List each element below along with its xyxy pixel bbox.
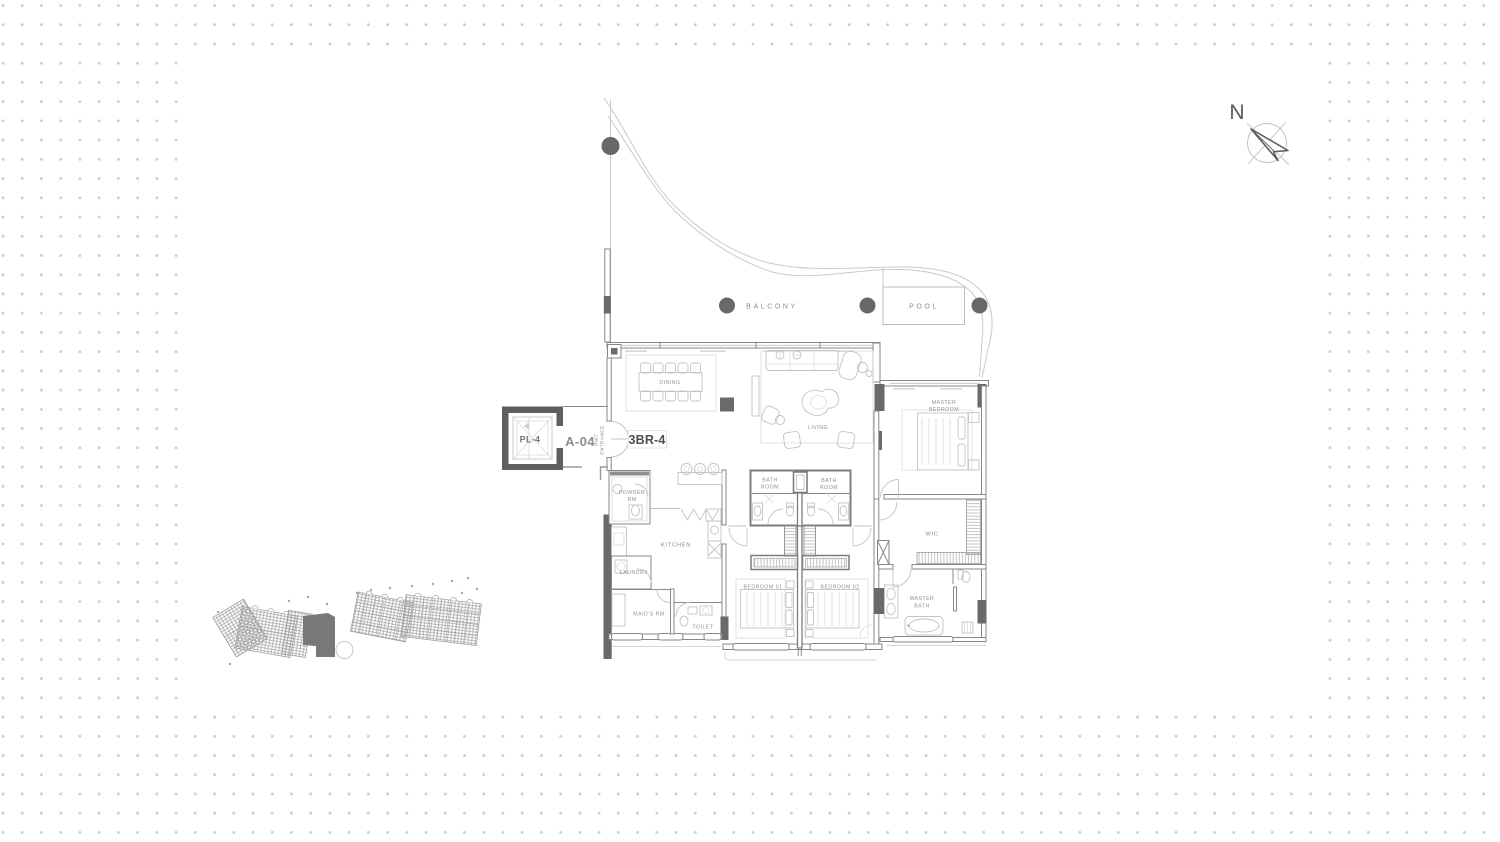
svg-text:POWDER: POWDER (619, 490, 645, 496)
svg-text:POOL: POOL (909, 304, 939, 311)
svg-text:BEDROOM 01: BEDROOM 01 (743, 585, 782, 591)
svg-text:TOILET: TOILET (692, 625, 713, 631)
svg-text:RM: RM (627, 497, 636, 503)
svg-text:A-04: A-04 (565, 434, 595, 449)
svg-text:ROOM: ROOM (761, 485, 779, 491)
svg-text:BEDROOM 02: BEDROOM 02 (820, 585, 859, 591)
svg-text:WIC: WIC (925, 532, 938, 538)
svg-text:BATH: BATH (821, 478, 836, 484)
svg-text:MASTER: MASTER (910, 596, 935, 602)
svg-text:LAUNDRY: LAUNDRY (620, 570, 648, 576)
svg-text:MASTER: MASTER (932, 400, 957, 406)
svg-text:BEDROOM: BEDROOM (929, 407, 959, 413)
svg-text:BATH: BATH (914, 604, 929, 610)
svg-text:N: N (1229, 101, 1244, 124)
svg-text:ROOM: ROOM (820, 485, 838, 491)
svg-text:BALCONY: BALCONY (746, 304, 798, 311)
svg-text:3BR-4: 3BR-4 (628, 433, 665, 447)
svg-text:LIVING: LIVING (808, 425, 828, 431)
svg-text:PL-4: PL-4 (520, 435, 541, 445)
svg-text:ENTRANCE: ENTRANCE (600, 425, 606, 455)
svg-text:UNIT: UNIT (594, 434, 600, 447)
svg-text:BATH: BATH (762, 478, 777, 484)
svg-text:DINING: DINING (659, 380, 680, 386)
svg-text:KITCHEN: KITCHEN (661, 543, 691, 549)
svg-text:MAID'S RM: MAID'S RM (633, 612, 664, 618)
